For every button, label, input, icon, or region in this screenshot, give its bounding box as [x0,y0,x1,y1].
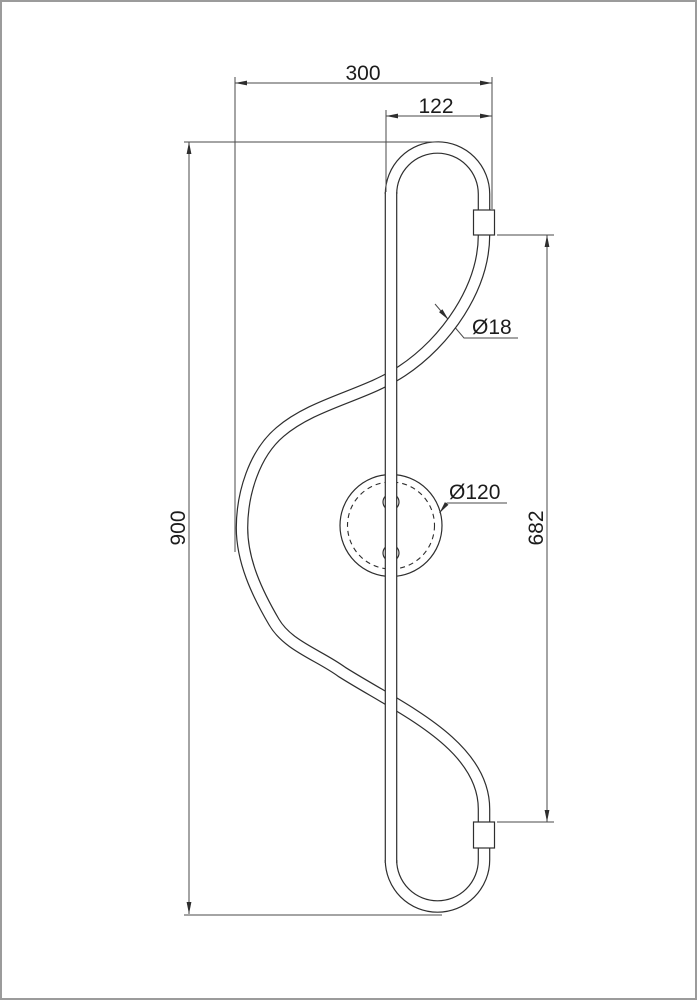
dimension-label-fitting-span: 682 [525,510,548,545]
dimension-label-overall-width: 300 [345,62,380,85]
canopy-diameter-callout: Ø120 [440,481,508,513]
wall-lamp-technical-drawing: 300 122 900 682 [2,2,697,1000]
arrowhead-bottom [545,810,550,822]
canopy-diameter-arrowhead [440,502,449,513]
dimension-label-overall-height: 900 [167,510,190,545]
dimension-overall-height: 900 [167,142,442,915]
dimension-label-tube-diameter: Ø18 [472,316,512,339]
dimension-label-top-loop-width: 122 [418,95,453,118]
tube-group [242,148,484,907]
dimension-overall-width: 300 [235,62,492,552]
tube-curve-outline [242,148,484,907]
arrowhead-right [480,81,492,86]
arrowhead-bottom [187,902,192,914]
fitting-top [474,210,495,235]
arrowhead-top [187,142,192,154]
arrowhead-top [545,235,550,247]
fitting-bottom [474,822,495,848]
fittings-group [474,210,495,848]
arrowhead-right [480,114,492,119]
canopy-diameter-leader-line [440,503,508,513]
tube-curve-fill [242,148,484,907]
dimension-label-canopy-diameter: Ø120 [449,481,500,504]
technical-drawing-page: 300 122 900 682 [0,0,697,1000]
arrowhead-left [386,114,398,119]
tube-diameter-callout: Ø18 [472,316,512,339]
arrowhead-left [235,81,247,86]
